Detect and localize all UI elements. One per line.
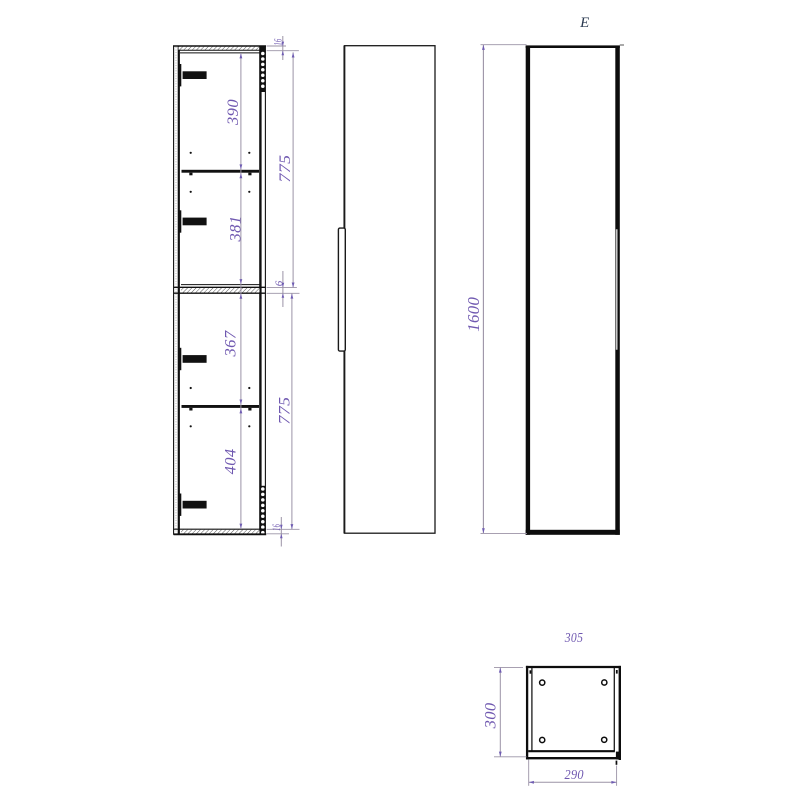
- svg-text:E: E: [579, 15, 590, 31]
- svg-text:775: 775: [277, 155, 294, 183]
- svg-text:305: 305: [564, 630, 583, 645]
- svg-text:390: 390: [225, 99, 242, 126]
- svg-text:16: 16: [269, 524, 283, 531]
- svg-text:775: 775: [276, 397, 293, 425]
- svg-text:1600: 1600: [464, 296, 483, 331]
- svg-text:6: 6: [274, 280, 286, 286]
- svg-text:404: 404: [222, 448, 239, 474]
- svg-text:300: 300: [482, 702, 499, 729]
- svg-text:290: 290: [564, 767, 584, 782]
- svg-text:367: 367: [222, 330, 239, 358]
- svg-text:16: 16: [271, 39, 285, 46]
- svg-text:381: 381: [228, 216, 245, 243]
